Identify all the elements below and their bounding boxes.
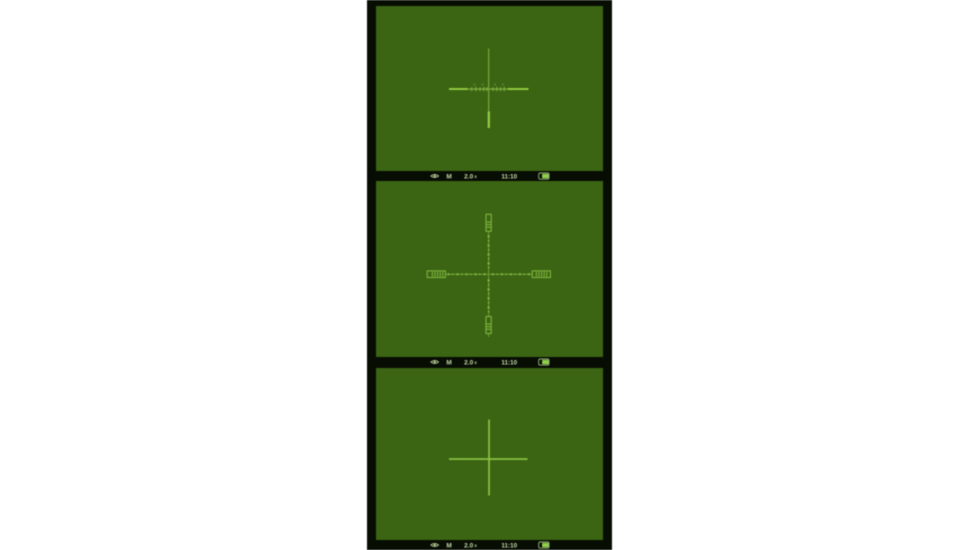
svg-text:2.0: 2.0 (464, 542, 473, 549)
svg-text:M: M (446, 359, 451, 366)
svg-text:2.0: 2.0 (464, 173, 473, 180)
svg-text:M: M (446, 173, 451, 180)
svg-text:11:10: 11:10 (501, 359, 517, 366)
svg-text:x: x (474, 174, 477, 179)
svg-text:x: x (474, 543, 477, 548)
svg-text:11:10: 11:10 (501, 173, 517, 180)
svg-text:2.0: 2.0 (464, 359, 473, 366)
svg-text:x: x (474, 360, 477, 365)
svg-text:M: M (446, 542, 451, 549)
svg-text:11:10: 11:10 (501, 542, 517, 549)
